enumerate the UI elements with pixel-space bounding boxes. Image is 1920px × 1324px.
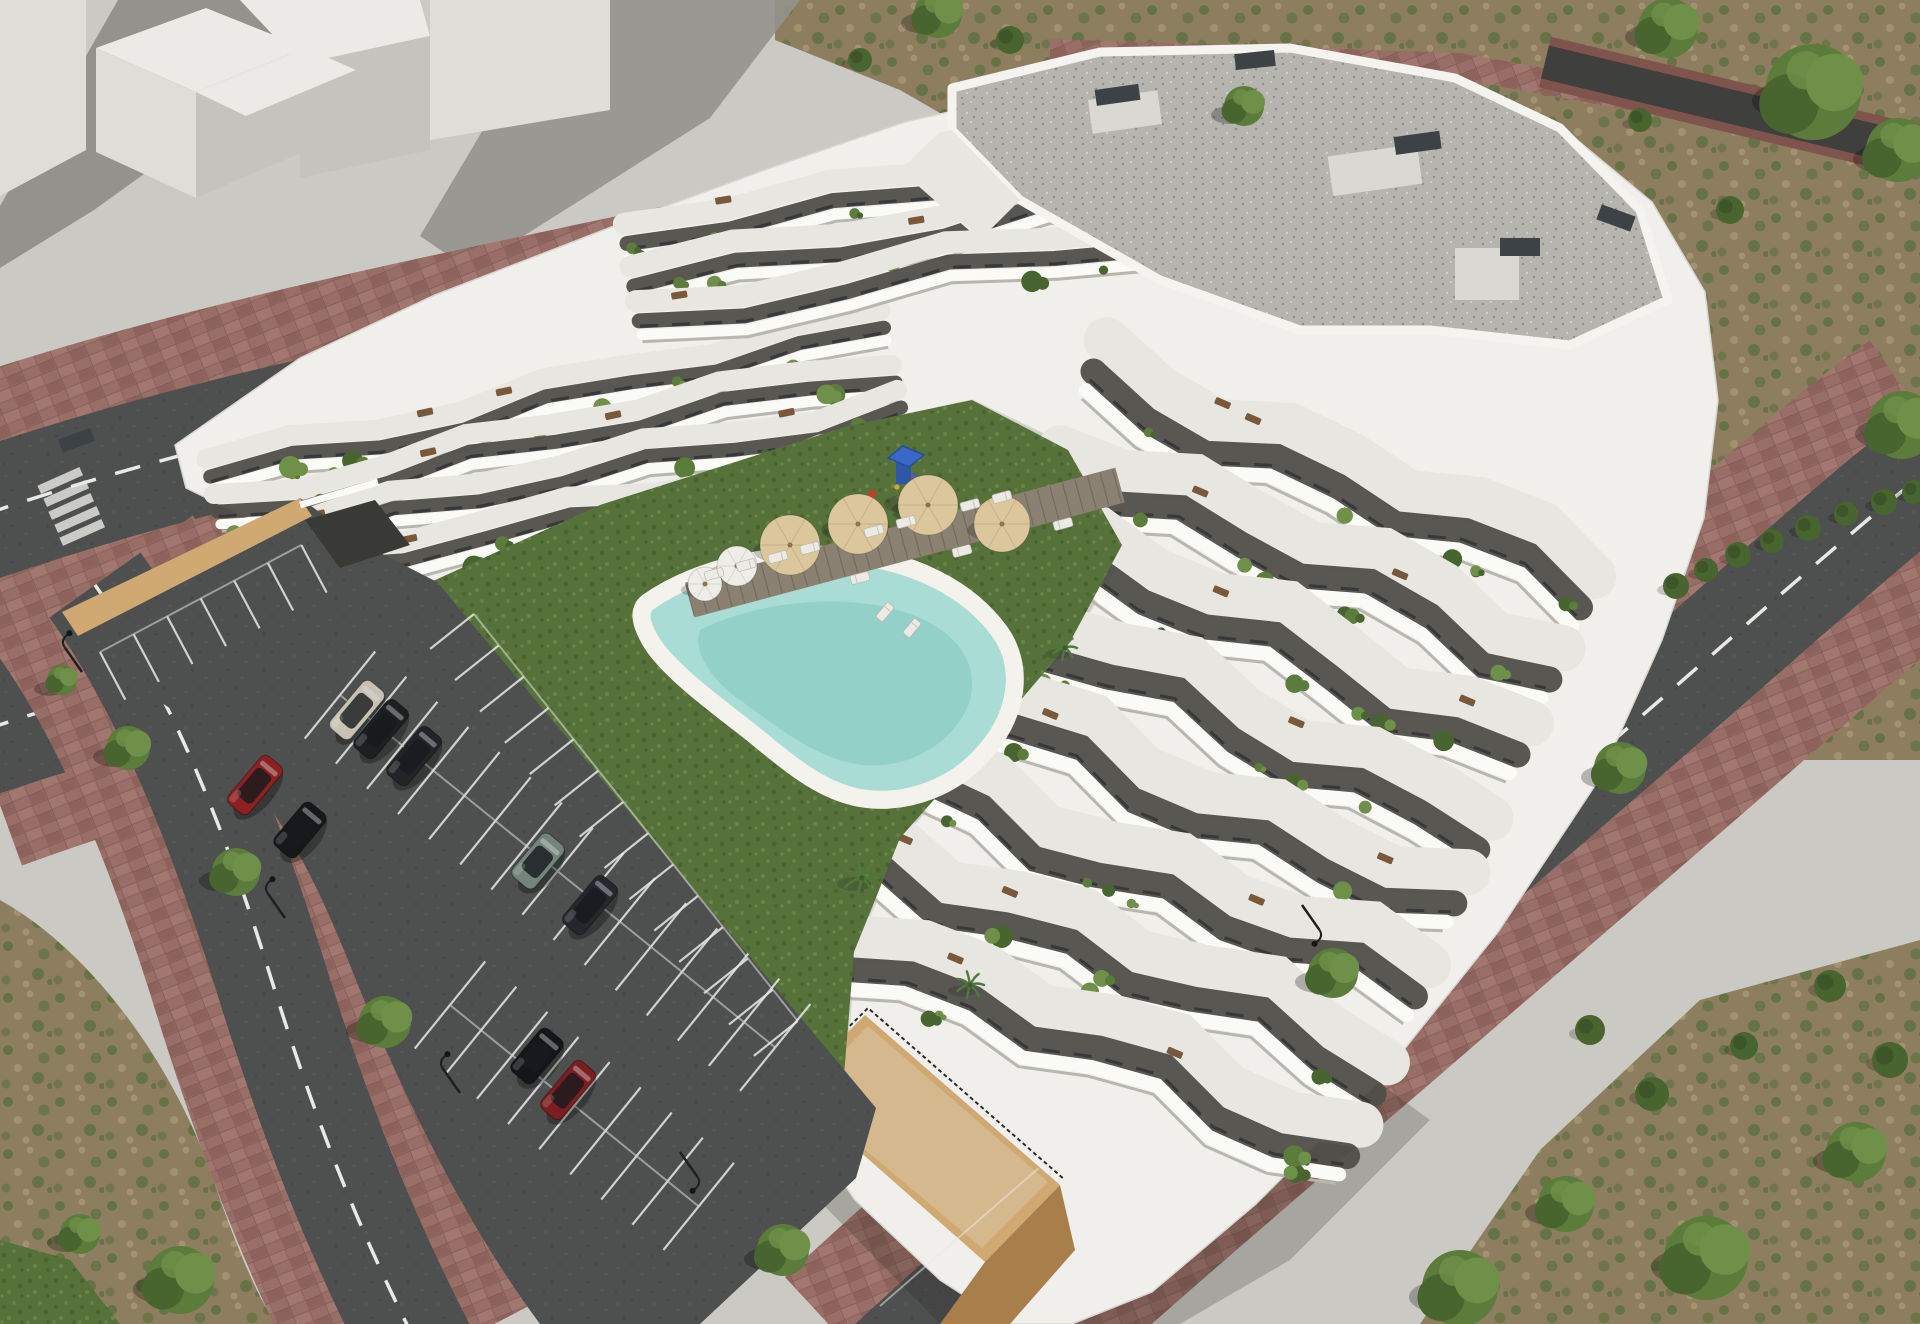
terrace-shrub <box>1337 507 1353 523</box>
terrace-shrub <box>1102 884 1115 897</box>
terrace-shrub <box>1433 730 1454 751</box>
terrace-shrub <box>1333 881 1352 900</box>
terrace-shrub <box>1099 266 1108 275</box>
terrace-shrub <box>1133 513 1148 528</box>
terrace-shrub <box>1237 558 1252 573</box>
terrace-shrub <box>1082 878 1092 888</box>
aerial-render <box>0 0 1920 1324</box>
terrace-shrub <box>1284 1166 1298 1180</box>
terrace-shrub <box>674 457 695 478</box>
terrace-shrub <box>1359 801 1372 814</box>
render-stage <box>0 0 1920 1324</box>
terrace-shrub <box>984 928 1000 944</box>
